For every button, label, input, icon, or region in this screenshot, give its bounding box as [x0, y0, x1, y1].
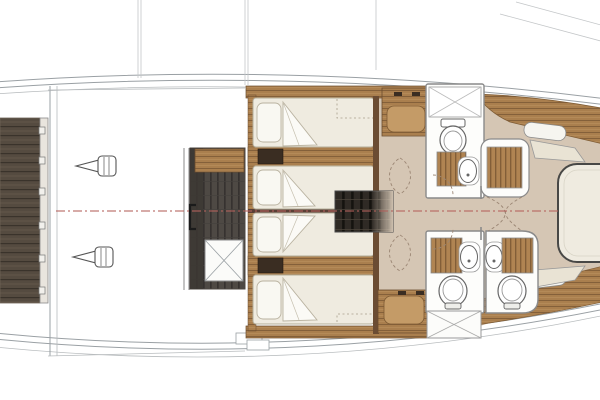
- sink-basin: [460, 160, 477, 183]
- dresser-handle: [398, 291, 406, 295]
- ensuite-bathroom: [485, 231, 538, 313]
- sink-drain: [468, 260, 471, 263]
- toilet-base: [445, 303, 461, 309]
- shower-grating: [431, 238, 462, 273]
- engine-room-shelf: [195, 149, 244, 172]
- yacht-lower-deck-plan: [0, 0, 600, 400]
- platform-cleat: [39, 188, 45, 195]
- sink-drain: [467, 174, 470, 177]
- dresser-handle: [394, 92, 402, 96]
- platform-cleat: [39, 287, 45, 294]
- wardrobe: [429, 87, 481, 117]
- drive-unit-body: [95, 247, 113, 267]
- platform-cleat: [39, 127, 45, 134]
- cockpit-forward-edge: [48, 88, 245, 90]
- shower-stall: [481, 139, 529, 197]
- floor-plan-canvas: [0, 0, 600, 400]
- sink: [459, 242, 480, 272]
- swim-platform-trim: [40, 118, 48, 303]
- bed-pillow: [257, 217, 281, 252]
- superstructure-reference-lines: [138, 0, 600, 85]
- dresser-handle: [412, 92, 420, 96]
- bow-rail-line: [516, 2, 600, 28]
- guest-bathroom: [426, 231, 484, 313]
- dresser-handle: [416, 291, 424, 295]
- bed-pillow: [257, 103, 281, 142]
- shower-grating: [487, 147, 522, 188]
- swim-platform: [0, 118, 48, 303]
- drive-unit-starboard: [73, 247, 113, 267]
- sink: [458, 157, 479, 185]
- drive-unit-body: [98, 156, 116, 176]
- drive-unit-port: [76, 156, 116, 176]
- transom-step-lower: [247, 340, 269, 350]
- bed-pillow: [257, 281, 281, 319]
- drive-unit-nose: [73, 251, 96, 263]
- sink-basin: [486, 246, 502, 269]
- dresser-port: [382, 88, 430, 136]
- bed-pillow: [257, 170, 281, 205]
- sink-basin: [461, 246, 478, 269]
- island-bed: [558, 164, 600, 262]
- sink-drain: [493, 260, 496, 263]
- storage-hatch: [427, 311, 481, 338]
- toilet: [440, 119, 466, 154]
- dresser-panel: [384, 296, 424, 324]
- platform-cleat: [39, 157, 45, 164]
- drive-unit-nose: [76, 160, 99, 172]
- dresser-starboard: [378, 290, 430, 333]
- twin-bed-1: [253, 98, 374, 147]
- swim-platform-teak-deck: [0, 118, 40, 303]
- engine-room: [184, 148, 245, 290]
- toilet-base: [504, 303, 520, 309]
- dresser-panel: [387, 106, 425, 132]
- nightstand-port: [258, 149, 283, 164]
- platform-cleat: [39, 222, 45, 229]
- bow-rail-line: [500, 14, 600, 44]
- platform-cleat: [39, 255, 45, 262]
- shower-grating: [502, 238, 533, 273]
- nightstand-starboard: [258, 258, 283, 273]
- day-head-bathroom: [426, 84, 484, 198]
- twin-bed-4: [253, 275, 374, 324]
